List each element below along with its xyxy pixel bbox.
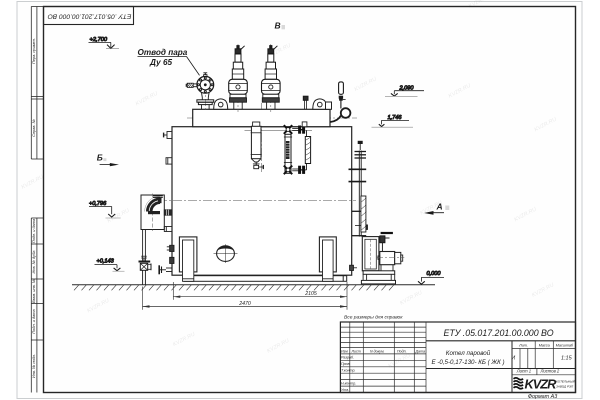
- svg-text:KVZR: KVZR: [525, 377, 558, 392]
- svg-text:Взам. инв. №: Взам. инв. №: [31, 278, 36, 303]
- svg-text:Подп.: Подп.: [397, 349, 407, 353]
- svg-text:0,000: 0,000: [427, 271, 442, 277]
- svg-text:ЗАВОД РЭП: ЗАВОД РЭП: [556, 385, 574, 389]
- svg-text:Н.контр.: Н.контр.: [341, 381, 356, 385]
- svg-text:Перв. примен.: Перв. примен.: [31, 38, 36, 64]
- svg-text:Отвод пара: Отвод пара: [138, 48, 188, 57]
- svg-text:2470: 2470: [238, 301, 251, 307]
- svg-text:N докум.: N докум.: [370, 349, 385, 353]
- svg-text:Изм: Изм: [341, 349, 348, 353]
- svg-text:Лист 1: Лист 1: [516, 368, 531, 373]
- svg-text:+0,796: +0,796: [89, 201, 107, 207]
- svg-text:Подп. и дата: Подп. и дата: [31, 218, 36, 243]
- svg-text:Е -0,5-0,17-130- КБ ( ЖК ): Е -0,5-0,17-130- КБ ( ЖК ): [431, 359, 504, 366]
- svg-text:Инв. № дубл.: Инв. № дубл.: [31, 250, 36, 274]
- svg-text:+0,143: +0,143: [97, 259, 115, 265]
- svg-text:И: И: [511, 356, 515, 362]
- svg-text:ЕТУ .05.017.201.00.000 ВО: ЕТУ .05.017.201.00.000 ВО: [443, 328, 553, 338]
- svg-text:КОТЕЛЬНЫЙ: КОТЕЛЬНЫЙ: [556, 380, 576, 384]
- svg-text:Инв. № подл.: Инв. № подл.: [31, 354, 36, 378]
- svg-text:В: В: [275, 21, 281, 31]
- svg-text:Т.контр.: Т.контр.: [341, 369, 356, 373]
- svg-text:Дата: Дата: [415, 349, 425, 353]
- svg-text:Лит.: Лит.: [518, 343, 528, 347]
- svg-text:Б: Б: [97, 153, 103, 163]
- svg-text:Лист: Лист: [351, 349, 361, 353]
- svg-text:ЕТУ .05.017.201.00.000 ВО: ЕТУ .05.017.201.00.000 ВО: [47, 13, 131, 20]
- svg-text:2105: 2105: [304, 291, 317, 297]
- svg-text:Подп. и дата: Подп. и дата: [31, 308, 36, 333]
- svg-text:+2,700: +2,700: [90, 37, 108, 43]
- svg-text:Утв.: Утв.: [341, 388, 349, 392]
- svg-text:Масса: Масса: [539, 343, 550, 347]
- svg-text:Котел паровой: Котел паровой: [446, 350, 491, 357]
- svg-text:А: А: [436, 201, 443, 211]
- svg-text:Листов 2: Листов 2: [540, 368, 560, 373]
- svg-text:Ду 65: Ду 65: [149, 58, 172, 67]
- svg-text:Пров.: Пров.: [341, 362, 350, 366]
- svg-text:Формат А3: Формат А3: [528, 394, 558, 400]
- svg-text:1:15: 1:15: [561, 355, 573, 361]
- svg-text:Масштаб: Масштаб: [556, 343, 574, 347]
- svg-text:Разраб.: Разраб.: [341, 356, 354, 360]
- svg-text:Все размеры для справок: Все размеры для справок: [344, 314, 403, 320]
- svg-text:Справ. №: Справ. №: [31, 118, 36, 136]
